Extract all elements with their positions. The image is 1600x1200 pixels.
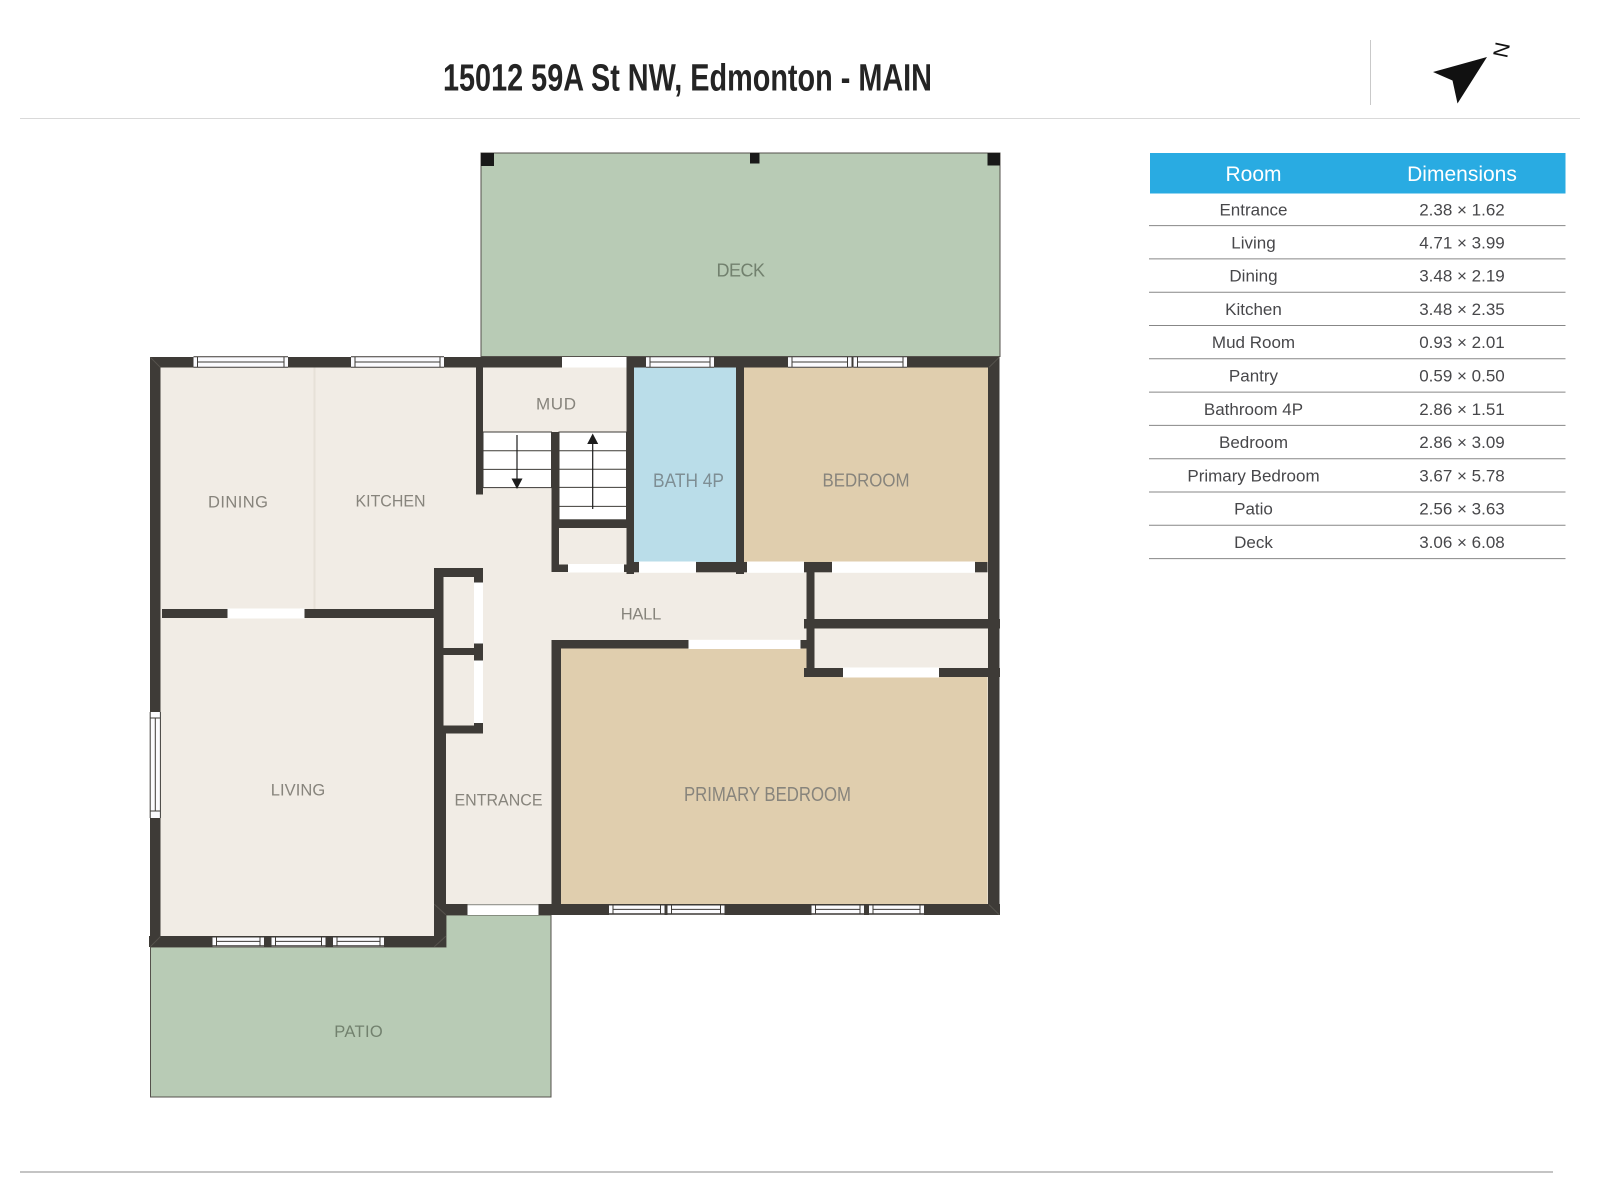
svg-text:2.86 × 3.09: 2.86 × 3.09 [1419,433,1505,452]
svg-text:2.38 × 1.62: 2.38 × 1.62 [1419,201,1505,220]
svg-text:2.86 × 1.51: 2.86 × 1.51 [1419,400,1505,419]
svg-text:Pantry: Pantry [1229,367,1279,386]
svg-text:Bedroom: Bedroom [1219,433,1288,452]
svg-text:DECK: DECK [717,261,766,281]
svg-text:Living: Living [1231,233,1275,252]
svg-text:Patio: Patio [1234,500,1273,519]
svg-text:Room: Room [1225,163,1281,186]
svg-text:Bathroom 4P: Bathroom 4P [1204,400,1303,419]
svg-text:PATIO: PATIO [334,1023,383,1041]
svg-text:Entrance: Entrance [1219,201,1287,220]
svg-text:15012 59A St NW, Edmonton - MA: 15012 59A St NW, Edmonton - MAIN [443,58,932,100]
svg-text:Dimensions: Dimensions [1407,163,1517,186]
svg-text:3.48 × 2.19: 3.48 × 2.19 [1419,267,1505,286]
svg-text:PRIMARY BEDROOM: PRIMARY BEDROOM [684,784,851,806]
svg-text:HALL: HALL [621,606,662,624]
svg-text:3.67 × 5.78: 3.67 × 5.78 [1419,466,1505,485]
svg-text:ENTRANCE: ENTRANCE [455,791,543,810]
svg-text:MUD: MUD [536,395,576,414]
svg-text:Primary Bedroom: Primary Bedroom [1187,466,1319,485]
svg-text:BEDROOM: BEDROOM [823,471,910,491]
svg-text:DINING: DINING [208,494,268,512]
svg-text:3.48 × 2.35: 3.48 × 2.35 [1419,300,1505,319]
svg-text:3.06 × 6.08: 3.06 × 6.08 [1419,533,1505,552]
svg-text:0.59 × 0.50: 0.59 × 0.50 [1419,367,1505,386]
svg-text:Kitchen: Kitchen [1225,300,1282,319]
svg-text:2.56 × 3.63: 2.56 × 3.63 [1419,500,1505,519]
svg-text:KITCHEN: KITCHEN [356,493,426,511]
svg-text:0.93 × 2.01: 0.93 × 2.01 [1419,333,1505,352]
svg-text:Mud Room: Mud Room [1212,333,1295,352]
svg-text:Deck: Deck [1234,533,1273,552]
svg-text:BATH 4P: BATH 4P [653,471,724,492]
svg-text:4.71 × 3.99: 4.71 × 3.99 [1419,233,1505,252]
svg-text:LIVING: LIVING [271,782,326,800]
svg-text:Dining: Dining [1229,267,1277,286]
